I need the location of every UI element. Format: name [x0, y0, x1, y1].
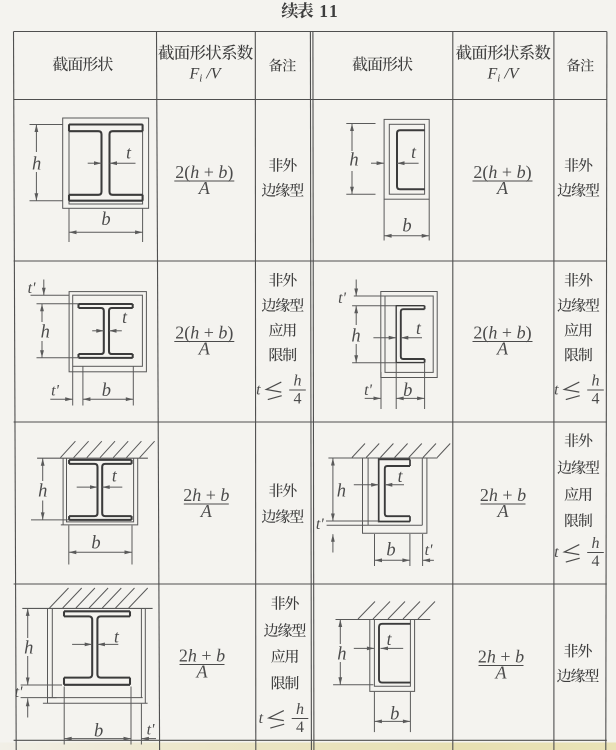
svg-text:t': t' [425, 542, 433, 559]
svg-text:A: A [496, 178, 509, 198]
svg-text:4: 4 [592, 390, 600, 407]
svg-text:b: b [91, 534, 100, 554]
svg-text:A: A [495, 663, 508, 683]
svg-text:h: h [592, 535, 600, 552]
svg-text:t: t [554, 544, 559, 561]
svg-text:h: h [337, 482, 346, 502]
svg-text:A: A [200, 501, 213, 521]
svg-text:h: h [24, 639, 33, 659]
svg-text:b: b [94, 722, 103, 742]
svg-text:Fi /V: Fi /V [486, 66, 520, 85]
svg-text:b: b [402, 217, 411, 237]
svg-text:b: b [390, 705, 399, 725]
svg-text:t': t' [147, 722, 155, 739]
svg-text:h: h [38, 481, 47, 501]
svg-text:h: h [351, 327, 360, 347]
svg-text:t': t' [338, 290, 346, 307]
svg-text:b: b [386, 541, 395, 561]
svg-text:t': t' [51, 383, 59, 400]
svg-text:t': t' [364, 382, 372, 399]
svg-text:4: 4 [296, 719, 304, 736]
svg-text:t: t [256, 382, 261, 399]
svg-text:h: h [296, 701, 304, 718]
svg-text:h: h [32, 155, 41, 175]
svg-text:h: h [349, 151, 358, 171]
svg-text:t: t [554, 382, 559, 399]
svg-text:A: A [198, 339, 211, 359]
svg-text:b: b [101, 210, 110, 230]
svg-text:b: b [102, 381, 111, 401]
svg-text:A: A [496, 339, 509, 359]
svg-text:h: h [592, 373, 600, 390]
svg-text:A: A [196, 662, 209, 682]
svg-text:11: 11 [319, 1, 340, 21]
svg-text:t': t' [28, 280, 36, 297]
svg-text:h: h [294, 373, 302, 390]
svg-text:4: 4 [294, 390, 302, 407]
svg-text:h: h [337, 645, 346, 665]
svg-text:t': t' [316, 516, 324, 533]
svg-text:h: h [41, 323, 50, 343]
svg-text:t': t' [15, 684, 23, 701]
svg-text:t: t [259, 710, 264, 727]
svg-text:Fi /V: Fi /V [188, 66, 222, 85]
svg-text:A: A [198, 178, 211, 198]
svg-text:A: A [497, 501, 510, 521]
svg-text:b: b [403, 381, 412, 401]
svg-text:4: 4 [592, 553, 600, 570]
